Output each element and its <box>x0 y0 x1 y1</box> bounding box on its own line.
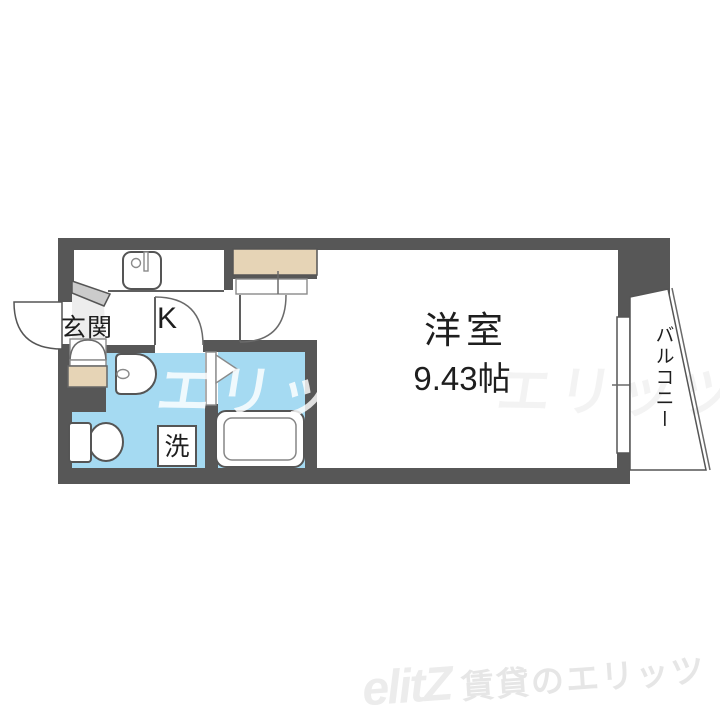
laundry-label: 洗 <box>164 433 189 461</box>
washbasin-faucet-icon <box>117 370 129 379</box>
shoe-cabinet-step <box>70 360 106 366</box>
sink-drain-icon <box>132 259 141 268</box>
toilet-tank-icon <box>69 423 91 462</box>
wall-entrance-block <box>67 387 106 412</box>
front-door-swing-icon <box>14 302 62 349</box>
room-name-label: 洋室 <box>424 310 508 351</box>
wall-bottom <box>58 468 630 484</box>
shoe-cabinet <box>70 339 106 360</box>
watermark-text: エリッツ <box>152 346 408 429</box>
entrance-label: 玄関 <box>61 314 113 342</box>
agency-logo-wordmark: elitZ <box>361 656 453 717</box>
toilet-bowl-icon <box>89 423 123 461</box>
closet-door <box>236 279 307 294</box>
wall-below-window <box>617 453 630 484</box>
kitchen-sink-icon <box>123 252 161 289</box>
room-size-label: 9.43帖 <box>413 360 510 397</box>
wall-kitchen-room <box>224 250 233 290</box>
watermark-text-faint: エリッツ <box>492 346 720 429</box>
closet <box>233 249 317 275</box>
kitchen-label: K <box>157 302 177 335</box>
shoe-box <box>68 366 107 387</box>
floorplan-page: 玄関 K 洗 洋室 9.43帖 バルコニー エリッツ エリッツ elitZ 賃貸… <box>0 0 720 720</box>
room-door-swing-icon <box>240 295 286 342</box>
wall-top <box>58 238 670 250</box>
sink-faucet-icon <box>144 252 148 271</box>
